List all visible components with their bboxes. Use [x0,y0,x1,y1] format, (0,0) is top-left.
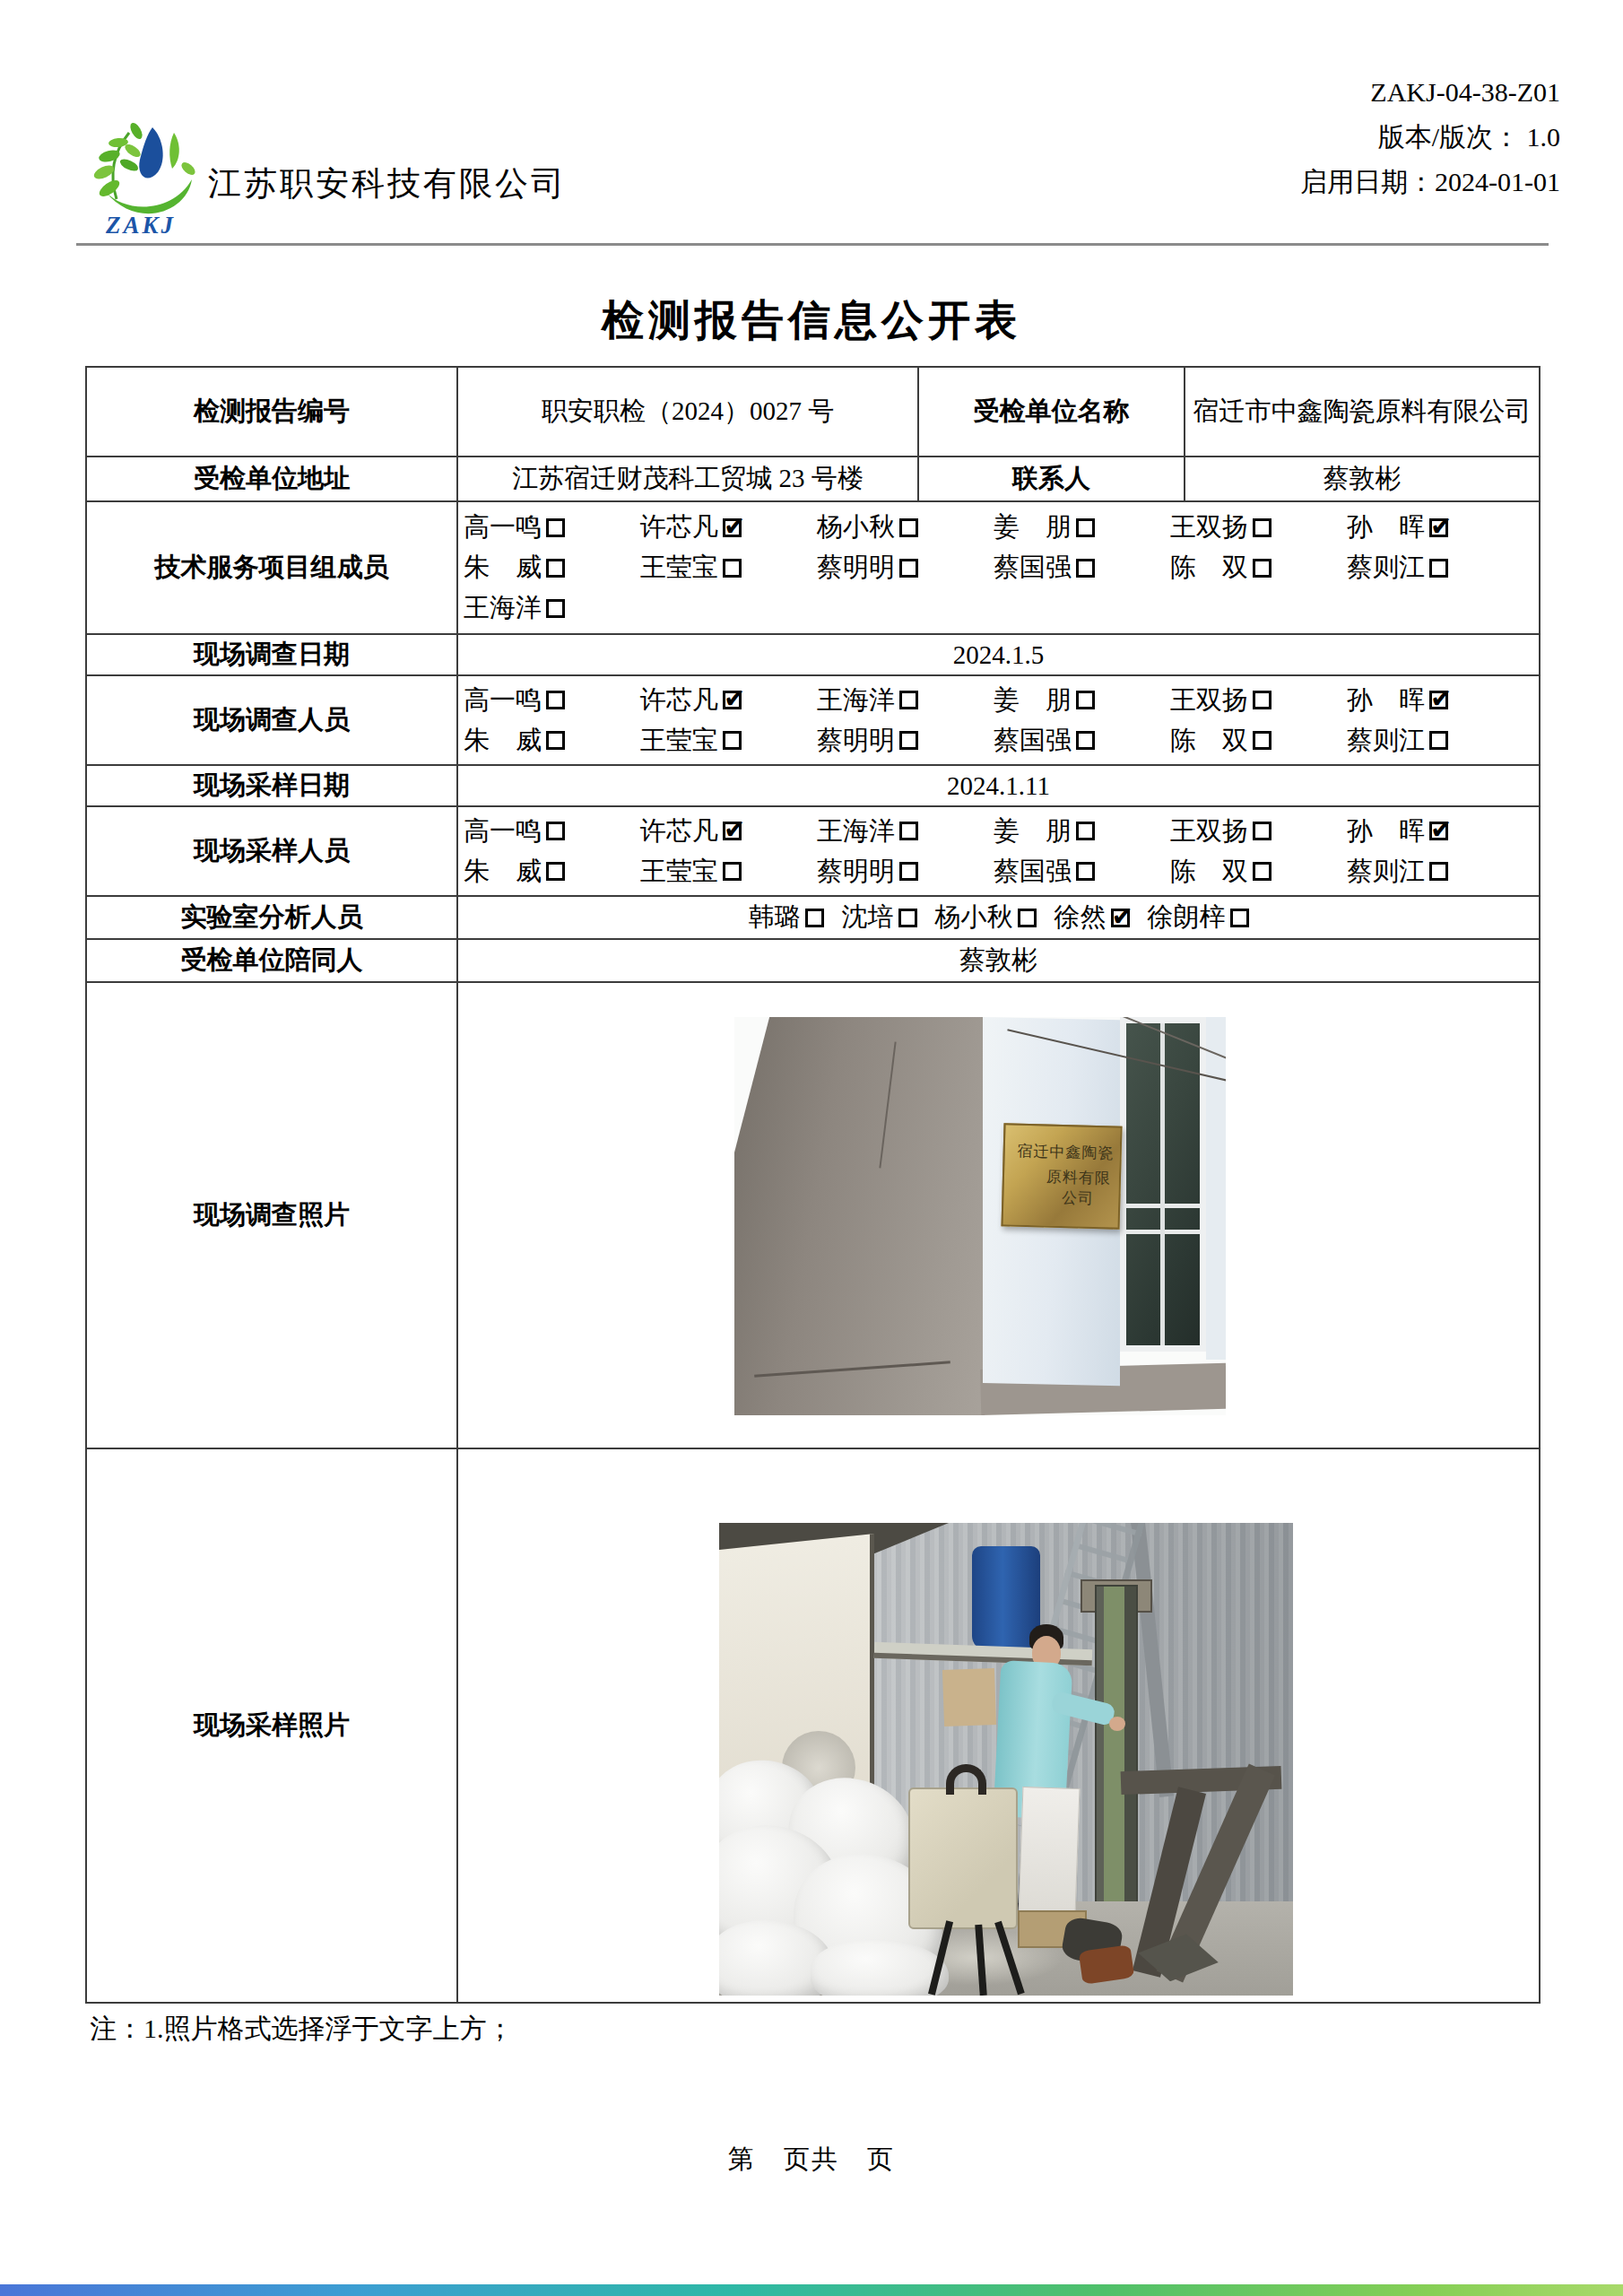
photo-paper-bag [1019,1787,1081,1916]
member-朱威: 朱 威 [464,723,640,759]
photo-company-plaque: 宿迁中鑫陶瓷 原料有限公司 [1001,1123,1121,1230]
checkbox-unchecked[interactable] [1230,909,1249,927]
photo-sampling-column [1095,1585,1138,1906]
member-name: 沈培 [842,900,894,935]
member-蔡国强: 蔡国强 [994,854,1170,890]
checkbox-unchecked[interactable] [1429,559,1448,578]
member-朱威: 朱 威 [464,854,640,890]
member-name: 朱 威 [464,854,542,890]
member-line: 高一鸣许芯凡杨小秋姜 朋王双扬孙 晖 [464,508,1533,548]
photo-instrument-box [908,1787,1018,1929]
photo-cardboard-box [942,1668,996,1726]
member-姜朋: 姜 朋 [994,509,1170,545]
member-line: 朱 威王莹宝蔡明明蔡国强陈 双蔡则江 [464,548,1533,588]
member-王海洋: 王海洋 [464,590,640,626]
checkbox-unchecked[interactable] [1253,691,1271,709]
member-line: 韩璐沈培杨小秋徐然徐朗梓 [464,900,1533,935]
report-no-label: 检测报告编号 [86,367,457,457]
checkbox-unchecked[interactable] [899,731,918,750]
member-徐朗梓: 徐朗梓 [1148,900,1249,935]
table-row: 现场采样照片 [86,1448,1540,2003]
member-name: 孙 晖 [1347,813,1425,849]
sample-date-label: 现场采样日期 [86,765,457,806]
photo-window [1120,1017,1206,1352]
member-name: 姜 朋 [994,683,1072,718]
checkbox-unchecked[interactable] [1018,909,1037,927]
checkbox-unchecked[interactable] [1429,731,1448,750]
checkbox-unchecked[interactable] [899,518,918,537]
checkbox-unchecked[interactable] [546,822,565,840]
company-name: 江苏职安科技有限公司 [208,161,567,206]
table-row: 现场调查日期 2024.1.5 [86,634,1540,675]
survey-photo-cell: 宿迁中鑫陶瓷 原料有限公司 [457,982,1540,1448]
sample-staff-cell: 高一鸣许芯凡王海洋姜 朋王双扬孙 晖朱 威王莹宝蔡明明蔡国强陈 双蔡则江 [457,806,1540,896]
member-高一鸣: 高一鸣 [464,683,640,718]
checkbox-unchecked[interactable] [899,822,918,840]
leaf-logo-icon: ZAKJ [82,113,217,240]
checkbox-checked[interactable] [723,822,742,840]
doc-date: 启用日期：2024-01-01 [1300,160,1560,204]
checkbox-unchecked[interactable] [1076,518,1095,537]
member-王双扬: 王双扬 [1170,683,1347,718]
member-name: 蔡则江 [1347,854,1425,890]
member-高一鸣: 高一鸣 [464,509,640,545]
logo-text: ZAKJ [105,212,176,239]
member-line: 高一鸣许芯凡王海洋姜 朋王双扬孙 晖 [464,811,1533,851]
member-蔡则江: 蔡则江 [1347,854,1523,890]
doc-version: 版本/版次： 1.0 [1300,115,1560,160]
member-name: 蔡明明 [817,550,895,586]
member-孙晖: 孙 晖 [1347,509,1523,545]
checkbox-checked[interactable] [1429,691,1448,709]
org-addr-value: 江苏宿迁财茂科工贸城 23 号楼 [457,457,918,501]
member-name: 陈 双 [1170,550,1248,586]
photo-window-mullion [1160,1023,1165,1345]
checkbox-unchecked[interactable] [1253,731,1271,750]
checkbox-unchecked[interactable] [1076,862,1095,881]
sample-photo [719,1523,1293,1996]
team-members-cell: 高一鸣许芯凡杨小秋姜 朋王双扬孙 晖朱 威王莹宝蔡明明蔡国强陈 双蔡则江王海洋 [457,501,1540,634]
member-蔡国强: 蔡国强 [994,723,1170,759]
table-row: 现场采样日期 2024.1.11 [86,765,1540,806]
checkbox-unchecked[interactable] [899,691,918,709]
table-row: 现场调查照片 宿迁中鑫陶瓷 [86,982,1540,1448]
member-name: 蔡则江 [1347,550,1425,586]
header-divider [76,243,1549,246]
team-label: 技术服务项目组成员 [86,501,457,634]
page-number-footer: 第 页共 页 [0,2142,1623,2178]
member-陈双: 陈 双 [1170,550,1347,586]
sample-staff-label: 现场采样人员 [86,806,457,896]
photo-instrument-handle [946,1764,986,1795]
member-蔡国强: 蔡国强 [994,550,1170,586]
survey-photo-label: 现场调查照片 [86,982,457,1448]
member-蔡则江: 蔡则江 [1347,550,1523,586]
checkbox-unchecked[interactable] [723,559,742,578]
member-name: 许芯凡 [640,813,718,849]
company-logo: ZAKJ [82,113,217,240]
checkbox-unchecked[interactable] [1076,691,1095,709]
escort-value: 蔡敦彬 [457,939,1540,982]
checkbox-unchecked[interactable] [899,862,918,881]
member-蔡明明: 蔡明明 [817,854,994,890]
checkbox-unchecked[interactable] [1253,822,1271,840]
member-韩璐: 韩璐 [749,900,824,935]
survey-date-label: 现场调查日期 [86,634,457,675]
member-name: 朱 威 [464,550,542,586]
member-name: 王海洋 [464,590,542,626]
checkbox-unchecked[interactable] [805,909,824,927]
photo-pillar-strip [1206,1017,1226,1360]
member-name: 韩璐 [749,900,801,935]
checkbox-unchecked[interactable] [1076,822,1095,840]
checkbox-unchecked[interactable] [723,862,742,881]
member-孙晖: 孙 晖 [1347,813,1523,849]
member-陈双: 陈 双 [1170,723,1347,759]
checkbox-checked[interactable] [1429,822,1448,840]
sample-photo-cell [457,1448,1540,2003]
member-徐然: 徐然 [1055,900,1130,935]
lab-staff-label: 实验室分析人员 [86,896,457,939]
member-王海洋: 王海洋 [817,683,994,718]
member-name: 杨小秋 [817,509,895,545]
member-王双扬: 王双扬 [1170,813,1347,849]
page-title: 检测报告信息公开表 [0,292,1623,349]
survey-staff-cell: 高一鸣许芯凡王海洋姜 朋王双扬孙 晖朱 威王莹宝蔡明明蔡国强陈 双蔡则江 [457,675,1540,765]
contact-label: 联系人 [918,457,1185,501]
member-name: 高一鸣 [464,813,542,849]
member-name: 王莹宝 [640,854,718,890]
plaque-text-line2: 原料有限公司 [1037,1166,1118,1209]
member-line: 高一鸣许芯凡王海洋姜 朋王双扬孙 晖 [464,680,1533,720]
member-name: 蔡明明 [817,723,895,759]
member-王海洋: 王海洋 [817,813,994,849]
footnote: 注：1.照片格式选择浮于文字上方； [90,2011,514,2048]
member-name: 徐然 [1055,900,1107,935]
checkbox-unchecked[interactable] [899,559,918,578]
member-蔡明明: 蔡明明 [817,723,994,759]
member-陈双: 陈 双 [1170,854,1347,890]
member-name: 王双扬 [1170,509,1248,545]
table-row: 检测报告编号 职安职检（2024）0027 号 受检单位名称 宿迁市中鑫陶瓷原料… [86,367,1540,457]
checkbox-checked[interactable] [1111,909,1130,927]
sample-date-value: 2024.1.11 [457,765,1540,806]
checkbox-unchecked[interactable] [1253,518,1271,537]
checkbox-unchecked[interactable] [723,731,742,750]
sample-photo-label: 现场采样照片 [86,1448,457,2003]
member-王莹宝: 王莹宝 [640,550,817,586]
table-row: 现场调查人员 高一鸣许芯凡王海洋姜 朋王双扬孙 晖朱 威王莹宝蔡明明蔡国强陈 双… [86,675,1540,765]
report-no-value: 职安职检（2024）0027 号 [457,367,918,457]
member-杨小秋: 杨小秋 [817,509,994,545]
photo-worker-hand [1109,1717,1125,1731]
member-name: 蔡国强 [994,550,1072,586]
checkbox-unchecked[interactable] [1076,731,1095,750]
checkbox-unchecked[interactable] [546,691,565,709]
bottom-gradient-bar [0,2284,1623,2296]
report-info-table: 检测报告编号 职安职检（2024）0027 号 受检单位名称 宿迁市中鑫陶瓷原料… [85,366,1541,2004]
org-name-label: 受检单位名称 [918,367,1185,457]
checkbox-unchecked[interactable] [898,909,917,927]
photo-building-wall [734,1017,985,1415]
table-row: 受检单位陪同人 蔡敦彬 [86,939,1540,982]
member-name: 王双扬 [1170,813,1248,849]
checkbox-unchecked[interactable] [546,862,565,881]
member-朱威: 朱 威 [464,550,640,586]
member-name: 姜 朋 [994,813,1072,849]
member-name: 许芯凡 [640,683,718,718]
member-name: 高一鸣 [464,509,542,545]
table-row: 受检单位地址 江苏宿迁财茂科工贸城 23 号楼 联系人 蔡敦彬 [86,457,1540,501]
checkbox-checked[interactable] [723,691,742,709]
member-name: 蔡国强 [994,854,1072,890]
member-王双扬: 王双扬 [1170,509,1347,545]
member-name: 王海洋 [817,683,895,718]
contact-value: 蔡敦彬 [1185,457,1540,501]
checkbox-unchecked[interactable] [1253,559,1271,578]
member-name: 陈 双 [1170,854,1248,890]
member-name: 蔡国强 [994,723,1072,759]
member-姜朋: 姜 朋 [994,683,1170,718]
member-name: 王海洋 [817,813,895,849]
member-name: 孙 晖 [1347,509,1425,545]
survey-photo: 宿迁中鑫陶瓷 原料有限公司 [734,1017,1226,1415]
member-姜朋: 姜 朋 [994,813,1170,849]
org-addr-label: 受检单位地址 [86,457,457,501]
member-许芯凡: 许芯凡 [640,683,817,718]
member-line: 朱 威王莹宝蔡明明蔡国强陈 双蔡则江 [464,720,1533,761]
member-name: 王双扬 [1170,683,1248,718]
checkbox-unchecked[interactable] [546,518,565,537]
plaque-text-line1: 宿迁中鑫陶瓷 [1011,1140,1119,1163]
member-line: 朱 威王莹宝蔡明明蔡国强陈 双蔡则江 [464,851,1533,891]
member-许芯凡: 许芯凡 [640,509,817,545]
member-name: 徐朗梓 [1148,900,1226,935]
member-line: 王海洋 [464,588,1533,629]
member-name: 姜 朋 [994,509,1072,545]
member-name: 王莹宝 [640,723,718,759]
checkbox-unchecked[interactable] [546,731,565,750]
member-name: 王莹宝 [640,550,718,586]
member-name: 高一鸣 [464,683,542,718]
escort-label: 受检单位陪同人 [86,939,457,982]
member-王莹宝: 王莹宝 [640,723,817,759]
table-row: 实验室分析人员 韩璐沈培杨小秋徐然徐朗梓 [86,896,1540,939]
checkbox-checked[interactable] [723,518,742,537]
doc-code: ZAKJ-04-38-Z01 [1300,70,1560,115]
table-row: 现场采样人员 高一鸣许芯凡王海洋姜 朋王双扬孙 晖朱 威王莹宝蔡明明蔡国强陈 双… [86,806,1540,896]
member-孙晖: 孙 晖 [1347,683,1523,718]
org-name-value: 宿迁市中鑫陶瓷原料有限公司 [1185,367,1540,457]
member-name: 杨小秋 [935,900,1013,935]
table-row: 技术服务项目组成员 高一鸣许芯凡杨小秋姜 朋王双扬孙 晖朱 威王莹宝蔡明明蔡国强… [86,501,1540,634]
member-name: 陈 双 [1170,723,1248,759]
survey-staff-label: 现场调查人员 [86,675,457,765]
member-王莹宝: 王莹宝 [640,854,817,890]
checkbox-checked[interactable] [1429,518,1448,537]
member-许芯凡: 许芯凡 [640,813,817,849]
checkbox-unchecked[interactable] [1076,559,1095,578]
member-name: 许芯凡 [640,509,718,545]
lab-staff-cell: 韩璐沈培杨小秋徐然徐朗梓 [457,896,1540,939]
member-蔡则江: 蔡则江 [1347,723,1523,759]
member-蔡明明: 蔡明明 [817,550,994,586]
member-沈培: 沈培 [842,900,917,935]
member-name: 孙 晖 [1347,683,1425,718]
checkbox-unchecked[interactable] [546,599,565,618]
member-杨小秋: 杨小秋 [935,900,1037,935]
member-name: 蔡明明 [817,854,895,890]
member-name: 蔡则江 [1347,723,1425,759]
member-高一鸣: 高一鸣 [464,813,640,849]
survey-date-value: 2024.1.5 [457,634,1540,675]
checkbox-unchecked[interactable] [1429,862,1448,881]
checkbox-unchecked[interactable] [546,559,565,578]
member-name: 朱 威 [464,723,542,759]
doc-info-block: ZAKJ-04-38-Z01 版本/版次： 1.0 启用日期：2024-01-0… [1300,70,1560,204]
checkbox-unchecked[interactable] [1253,862,1271,881]
